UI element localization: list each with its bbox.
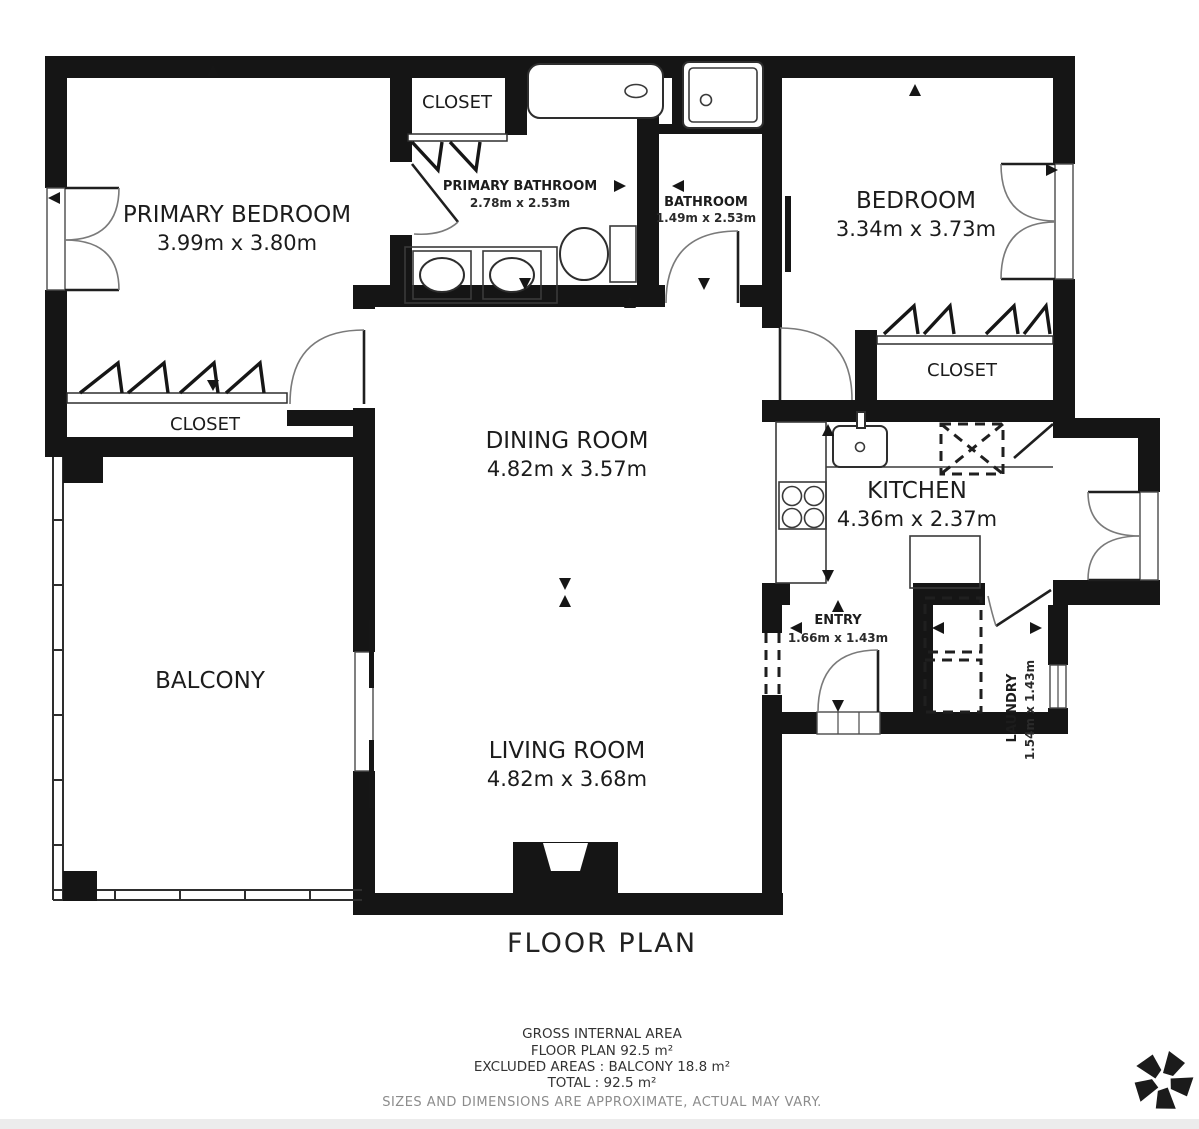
label-closet-top: CLOSET	[422, 92, 493, 113]
peninsula-counter	[910, 536, 980, 588]
footer-line-2: FLOOR PLAN 92.5 m²	[531, 1043, 673, 1059]
kitchen-door-jamb	[1140, 492, 1158, 580]
sliding-panel-icon	[369, 740, 374, 808]
dims-primary-bedroom: 3.99m x 3.80m	[157, 231, 317, 255]
balcony-column	[63, 871, 97, 901]
open-passage	[766, 633, 779, 695]
label-primary-bedroom: PRIMARY BEDROOM	[123, 202, 351, 228]
french-door-jamb	[47, 188, 65, 290]
fixtures	[405, 62, 1053, 712]
page-edge	[0, 1119, 1199, 1129]
kitchen-sink-icon	[833, 426, 887, 467]
dims-dining-room: 4.82m x 3.57m	[487, 457, 647, 481]
dims-laundry: 1.54m x 1.43m	[1023, 660, 1037, 760]
dryer-icon	[925, 660, 981, 712]
dimension-arrows	[48, 64, 1058, 712]
footer-line-1: GROSS INTERNAL AREA	[522, 1026, 682, 1042]
label-bathroom: BATHROOM	[664, 195, 748, 210]
dims-primary-bathroom: 2.78m x 2.53m	[470, 196, 570, 210]
washer-icon	[925, 598, 981, 652]
bifold-doors	[67, 134, 1053, 403]
balcony-column	[63, 457, 103, 483]
shower-icon	[683, 62, 763, 128]
dims-living-room: 4.82m x 3.68m	[487, 767, 647, 791]
dims-bedroom: 3.34m x 3.73m	[836, 217, 996, 241]
label-closet-right: CLOSET	[927, 360, 998, 381]
entry-door-sill	[817, 712, 880, 734]
radiator-icon	[785, 196, 791, 272]
pinwheel-logo-icon	[1128, 1051, 1199, 1118]
label-primary-bathroom: PRIMARY BATHROOM	[443, 179, 597, 194]
label-dining-room: DINING ROOM	[486, 428, 649, 454]
page-title: FLOOR PLAN	[507, 928, 697, 959]
label-laundry: LAUNDRY	[1005, 673, 1020, 742]
footer-line-3: EXCLUDED AREAS : BALCONY 18.8 m²	[474, 1059, 730, 1075]
floor-plan-drawing: PRIMARY BEDROOM 3.99m x 3.80m CLOSET PRI…	[0, 0, 1199, 1129]
dims-bathroom: 1.49m x 2.53m	[656, 211, 756, 225]
label-living-room: LIVING ROOM	[489, 738, 646, 764]
floor-plan-page: PRIMARY BEDROOM 3.99m x 3.80m CLOSET PRI…	[0, 0, 1199, 1129]
bathtub-icon	[528, 64, 663, 118]
label-balcony: BALCONY	[155, 668, 266, 694]
label-kitchen: KITCHEN	[867, 478, 967, 504]
toilet-icon	[610, 226, 636, 282]
dims-kitchen: 4.36m x 2.37m	[837, 507, 997, 531]
label-entry: ENTRY	[814, 613, 862, 628]
dims-entry: 1.66m x 1.43m	[788, 631, 888, 645]
footer-line-4: TOTAL : 92.5 m²	[547, 1075, 657, 1091]
label-bedroom: BEDROOM	[856, 188, 976, 214]
bedroom-door-jamb	[1055, 164, 1073, 279]
footer: GROSS INTERNAL AREA FLOOR PLAN 92.5 m² E…	[382, 1026, 822, 1110]
label-closet-left: CLOSET	[170, 414, 241, 435]
footer-disclaimer: SIZES AND DIMENSIONS ARE APPROXIMATE, AC…	[382, 1095, 822, 1110]
kitchen-counter	[776, 422, 826, 583]
sliding-panel-icon	[369, 620, 374, 688]
